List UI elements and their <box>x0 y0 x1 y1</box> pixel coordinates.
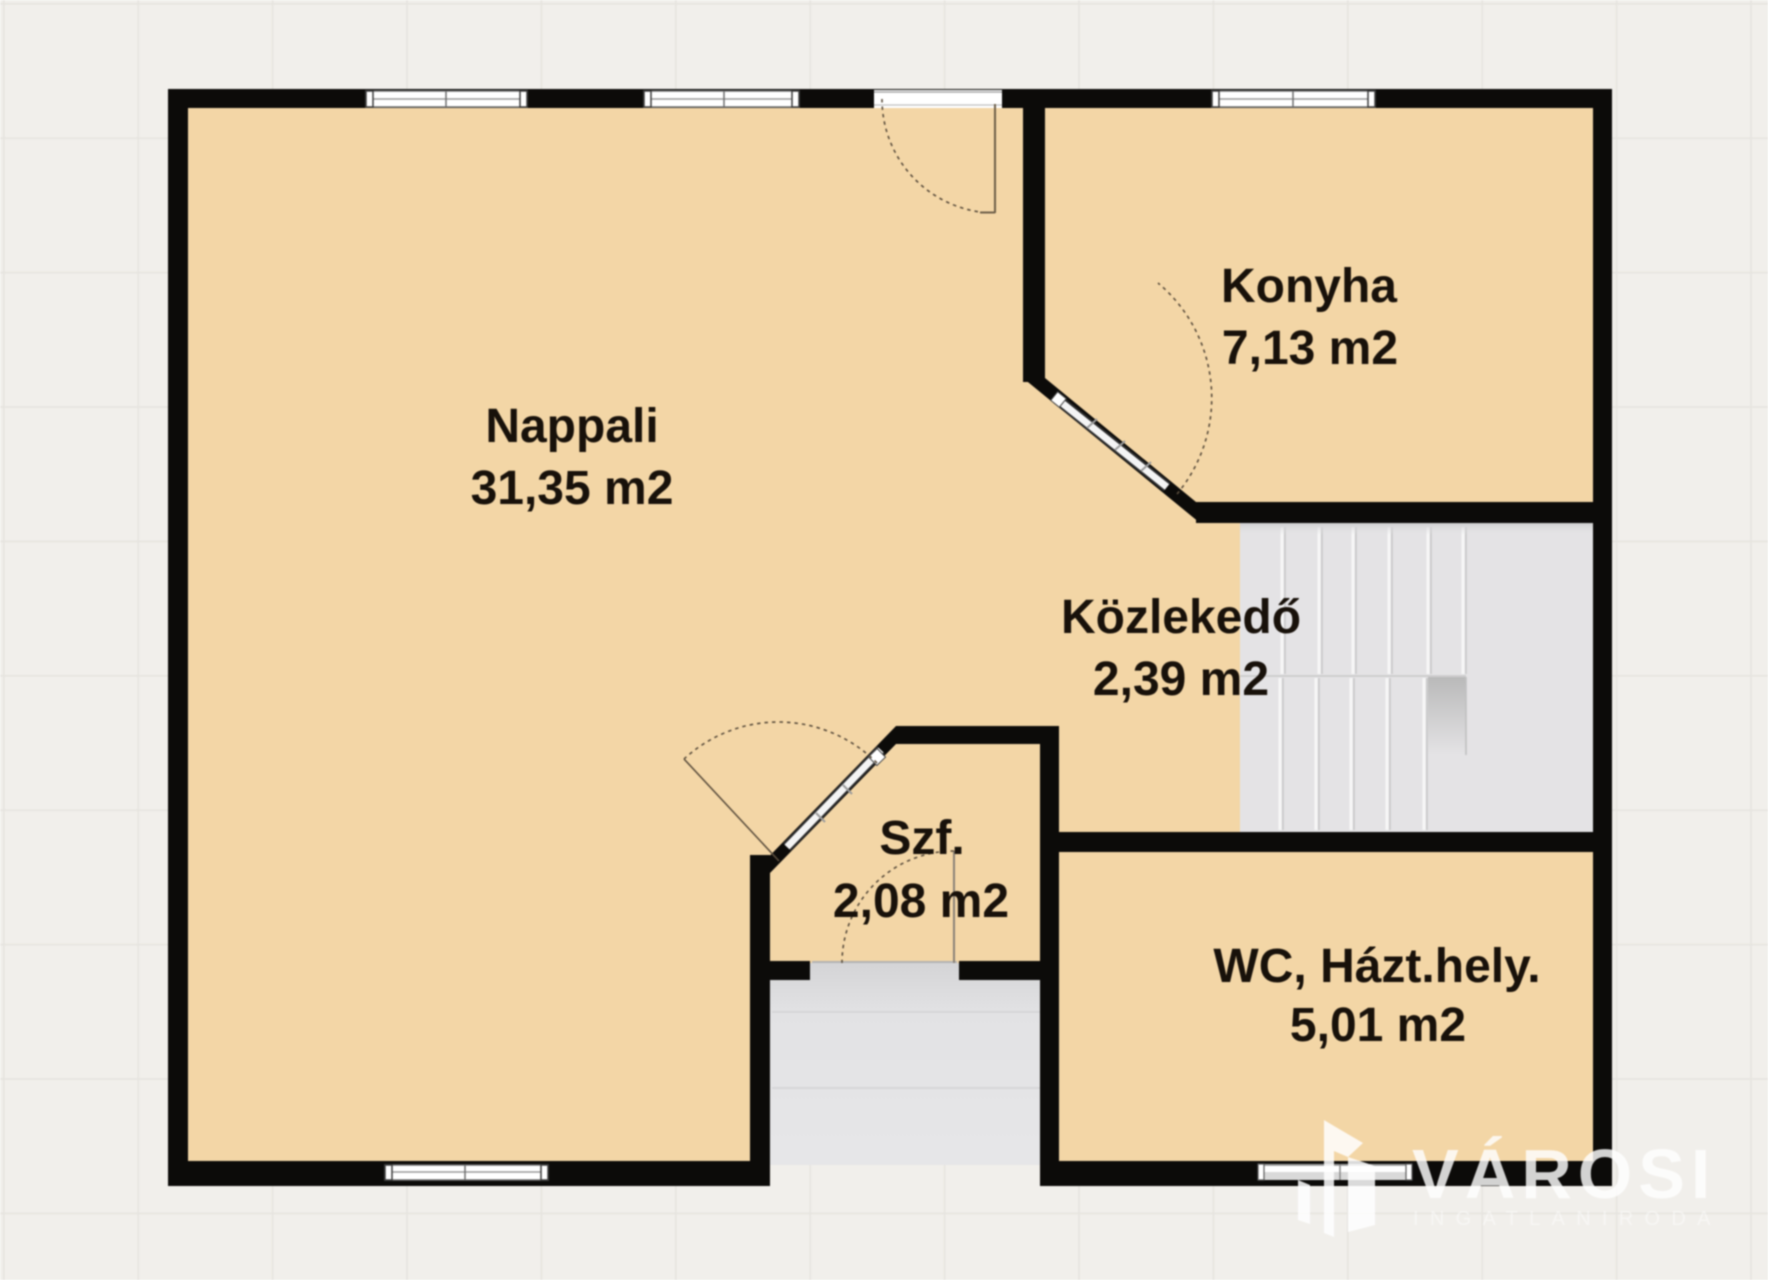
svg-text:Szf.: Szf. <box>879 812 964 865</box>
svg-text:2,08 m2: 2,08 m2 <box>833 875 1009 928</box>
svg-text:Konyha: Konyha <box>1221 260 1397 313</box>
svg-text:VÁROSI: VÁROSI <box>1412 1135 1716 1213</box>
svg-text:Nappali: Nappali <box>485 400 658 453</box>
svg-text:5,01 m2: 5,01 m2 <box>1290 999 1466 1052</box>
svg-text:WC, Házt.hely.: WC, Házt.hely. <box>1213 940 1540 993</box>
svg-text:7,13 m2: 7,13 m2 <box>1222 322 1398 375</box>
svg-text:Közlekedő: Közlekedő <box>1061 591 1301 644</box>
svg-text:2,39 m2: 2,39 m2 <box>1093 653 1269 706</box>
svg-text:INGATLANIRODA: INGATLANIRODA <box>1413 1208 1722 1230</box>
svg-text:31,35 m2: 31,35 m2 <box>471 462 674 515</box>
